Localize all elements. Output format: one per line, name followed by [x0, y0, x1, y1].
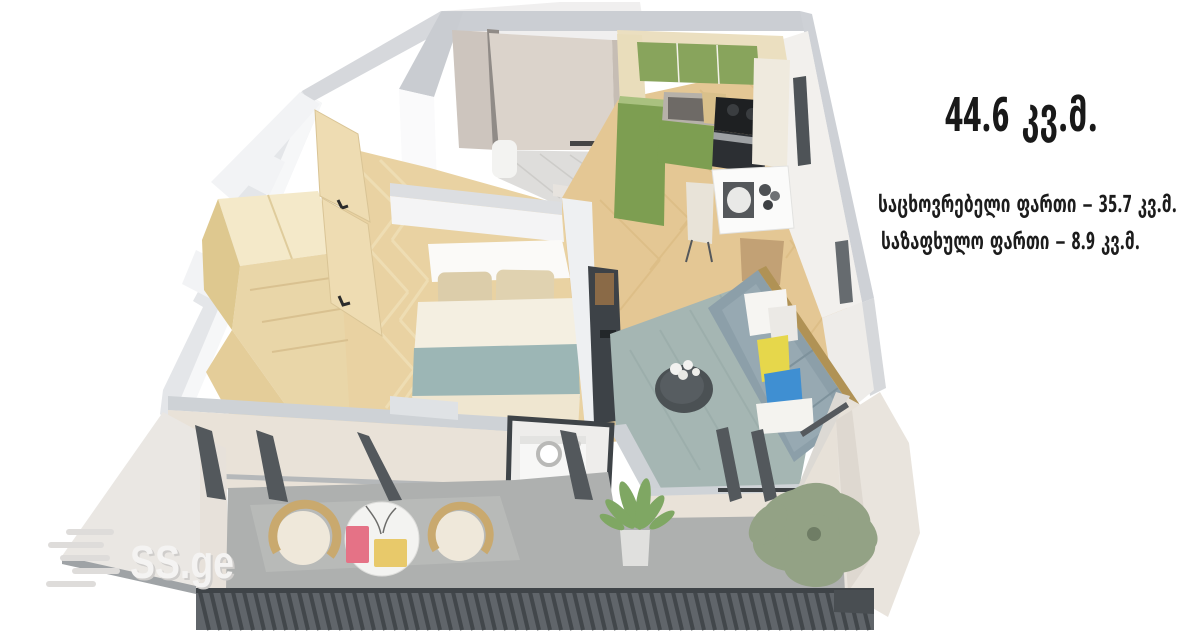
svg-text:SS.ge: SS.ge [130, 536, 234, 588]
